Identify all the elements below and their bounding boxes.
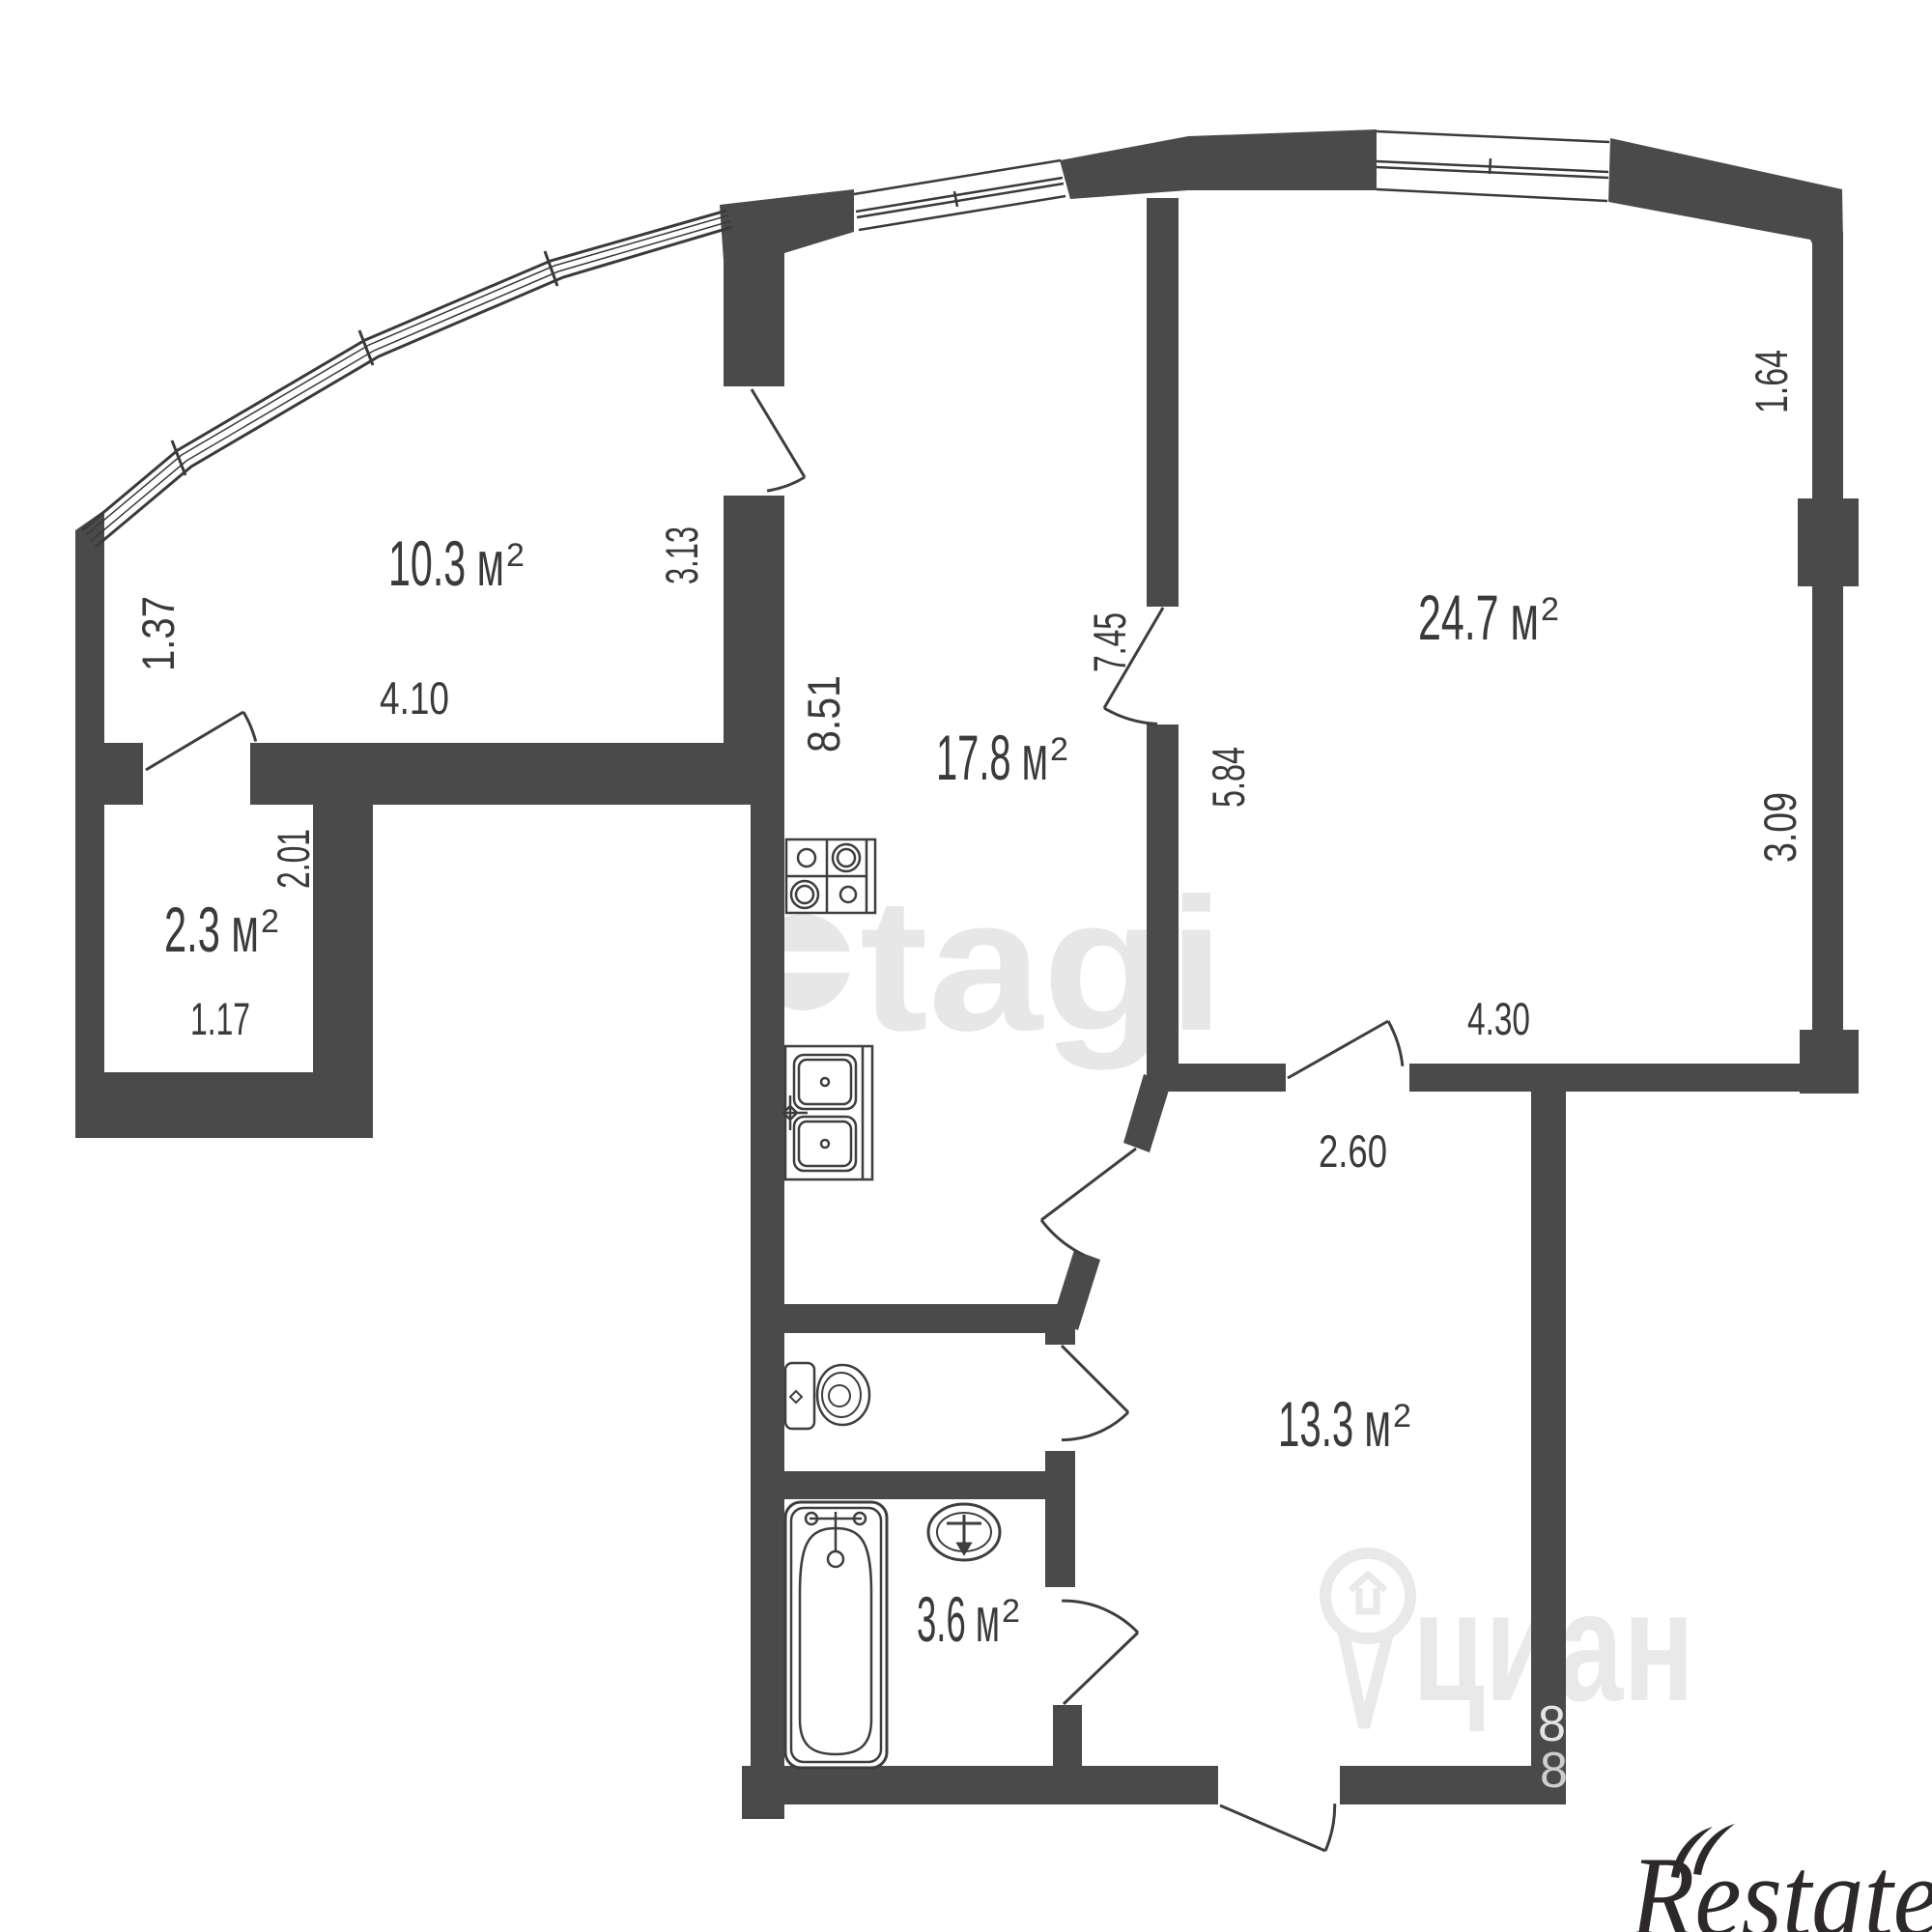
svg-text:2: 2 — [1541, 591, 1559, 628]
svg-text:2.3 м: 2.3 м — [164, 894, 259, 965]
svg-text:2: 2 — [506, 537, 525, 574]
svg-text:5.84: 5.84 — [1203, 747, 1254, 808]
svg-text:7.45: 7.45 — [1084, 612, 1135, 672]
svg-text:3.09: 3.09 — [1754, 792, 1805, 863]
svg-text:3.6 м: 3.6 м — [917, 1583, 1000, 1655]
svg-text:17.8 м: 17.8 м — [936, 722, 1048, 793]
svg-text:2: 2 — [261, 903, 279, 940]
svg-text:2.01: 2.01 — [268, 829, 319, 889]
svg-text:2: 2 — [1050, 731, 1068, 768]
svg-text:8.51: 8.51 — [798, 675, 849, 753]
svg-text:4.30: 4.30 — [1467, 993, 1530, 1044]
svg-text:1.37: 1.37 — [132, 596, 184, 671]
svg-text:1.64: 1.64 — [1746, 350, 1797, 413]
svg-text:10.3 м: 10.3 м — [388, 527, 504, 599]
svg-text:8: 8 — [1540, 1743, 1568, 1799]
svg-text:Restate: Restate — [1630, 1833, 1932, 1932]
svg-text:13.3 м: 13.3 м — [1278, 1388, 1391, 1460]
svg-text:2: 2 — [1393, 1398, 1411, 1435]
svg-text:3.13: 3.13 — [656, 526, 707, 584]
svg-text:4.10: 4.10 — [380, 672, 449, 724]
svg-text:1.17: 1.17 — [190, 993, 250, 1044]
svg-text:2: 2 — [1002, 1593, 1020, 1630]
svg-text:2.60: 2.60 — [1319, 1125, 1387, 1177]
svg-text:24.7 м: 24.7 м — [1418, 582, 1539, 653]
